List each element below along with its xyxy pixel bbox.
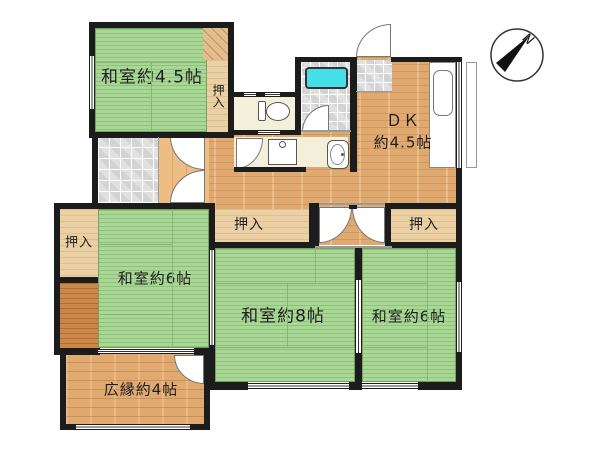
- window: [244, 92, 256, 97]
- wall: [278, 130, 301, 135]
- tatami-mat-line: [172, 209, 173, 348]
- tatami-mat-line: [287, 283, 288, 347]
- washbasin-faucet: [279, 141, 286, 148]
- tatami-mat-line: [98, 314, 172, 315]
- toilet-tank: [258, 101, 266, 121]
- label-hiroen: 広縁約4帖: [104, 383, 179, 398]
- wall: [295, 57, 356, 62]
- wall: [89, 132, 234, 138]
- tatami-mat-line: [427, 248, 428, 382]
- wall: [228, 97, 234, 138]
- tatami-mat-line: [362, 283, 427, 284]
- bathtub: [305, 67, 348, 89]
- tatami-mat-line: [95, 97, 151, 98]
- window: [362, 383, 418, 389]
- window: [98, 349, 194, 354]
- wall: [234, 130, 260, 135]
- corner-storage: [203, 24, 228, 60]
- wall: [295, 57, 301, 97]
- wall: [60, 352, 66, 430]
- wall: [456, 209, 462, 282]
- wall: [228, 22, 234, 97]
- window: [258, 130, 280, 135]
- exterior-gap: [234, 18, 295, 92]
- laundry-sink-drain: [341, 153, 344, 156]
- wall: [350, 57, 357, 172]
- floor-edge: [319, 203, 385, 205]
- wall: [295, 95, 301, 135]
- floor-edge: [356, 91, 392, 92]
- entrance-tile: [356, 60, 392, 92]
- compass: N: [488, 26, 548, 86]
- wall: [391, 57, 462, 62]
- genkan-tile: [98, 137, 158, 203]
- tatami-mat-line: [315, 248, 316, 283]
- tatami-mat-line: [215, 347, 355, 348]
- wall: [54, 277, 98, 283]
- label-dk-line1: ＤＫ: [386, 113, 420, 129]
- window: [248, 383, 349, 389]
- window: [355, 280, 362, 353]
- label-washitsu-8: 和室約8帖: [241, 309, 325, 326]
- window: [265, 92, 280, 97]
- floor-plan: N 和室約4.5帖 押入 ＤＫ 約4.5帖 押入 和室約6帖 押入 押入 和室約…: [0, 0, 600, 450]
- wall: [209, 382, 248, 390]
- window: [76, 424, 190, 430]
- toilet: [266, 102, 290, 121]
- tatami-mat-line: [362, 347, 427, 348]
- window: [456, 62, 462, 168]
- label-closet-center: 押入: [234, 218, 264, 232]
- window: [456, 282, 462, 352]
- label-closet-right: 押入: [409, 218, 439, 232]
- kitchen-sink: [433, 70, 453, 116]
- window: [89, 56, 95, 109]
- tatami-mat-line: [215, 283, 355, 284]
- wall: [391, 203, 462, 209]
- wall: [60, 424, 76, 430]
- wall: [418, 382, 462, 390]
- wall: [89, 22, 95, 56]
- floor-edge: [158, 137, 159, 203]
- exterior-bay: [466, 62, 477, 168]
- label-closet-top-left: 押入: [212, 84, 224, 108]
- wall: [349, 382, 362, 390]
- wall: [54, 203, 215, 209]
- tatami-mat-line: [98, 244, 172, 245]
- label-closet-left: 押入: [65, 237, 93, 250]
- floor-edge: [315, 246, 392, 248]
- wall: [234, 167, 306, 172]
- floor-edge: [301, 130, 351, 132]
- label-dk-line2: 約4.5帖: [374, 136, 433, 151]
- wall: [60, 348, 100, 355]
- wall: [355, 248, 362, 280]
- wall: [92, 135, 98, 209]
- wall: [456, 168, 462, 209]
- label-washitsu-6-right: 和室約6帖: [372, 310, 447, 325]
- tokonoma: [60, 283, 98, 348]
- wall: [89, 22, 234, 28]
- tatami-mat-line: [151, 62, 152, 132]
- label-washitsu-6-left: 和室約6帖: [118, 272, 193, 287]
- window: [209, 250, 215, 345]
- wall: [256, 92, 265, 97]
- front-door-swing: [356, 24, 391, 57]
- label-washitsu-4-5: 和室約4.5帖: [101, 70, 203, 87]
- wall: [209, 242, 315, 248]
